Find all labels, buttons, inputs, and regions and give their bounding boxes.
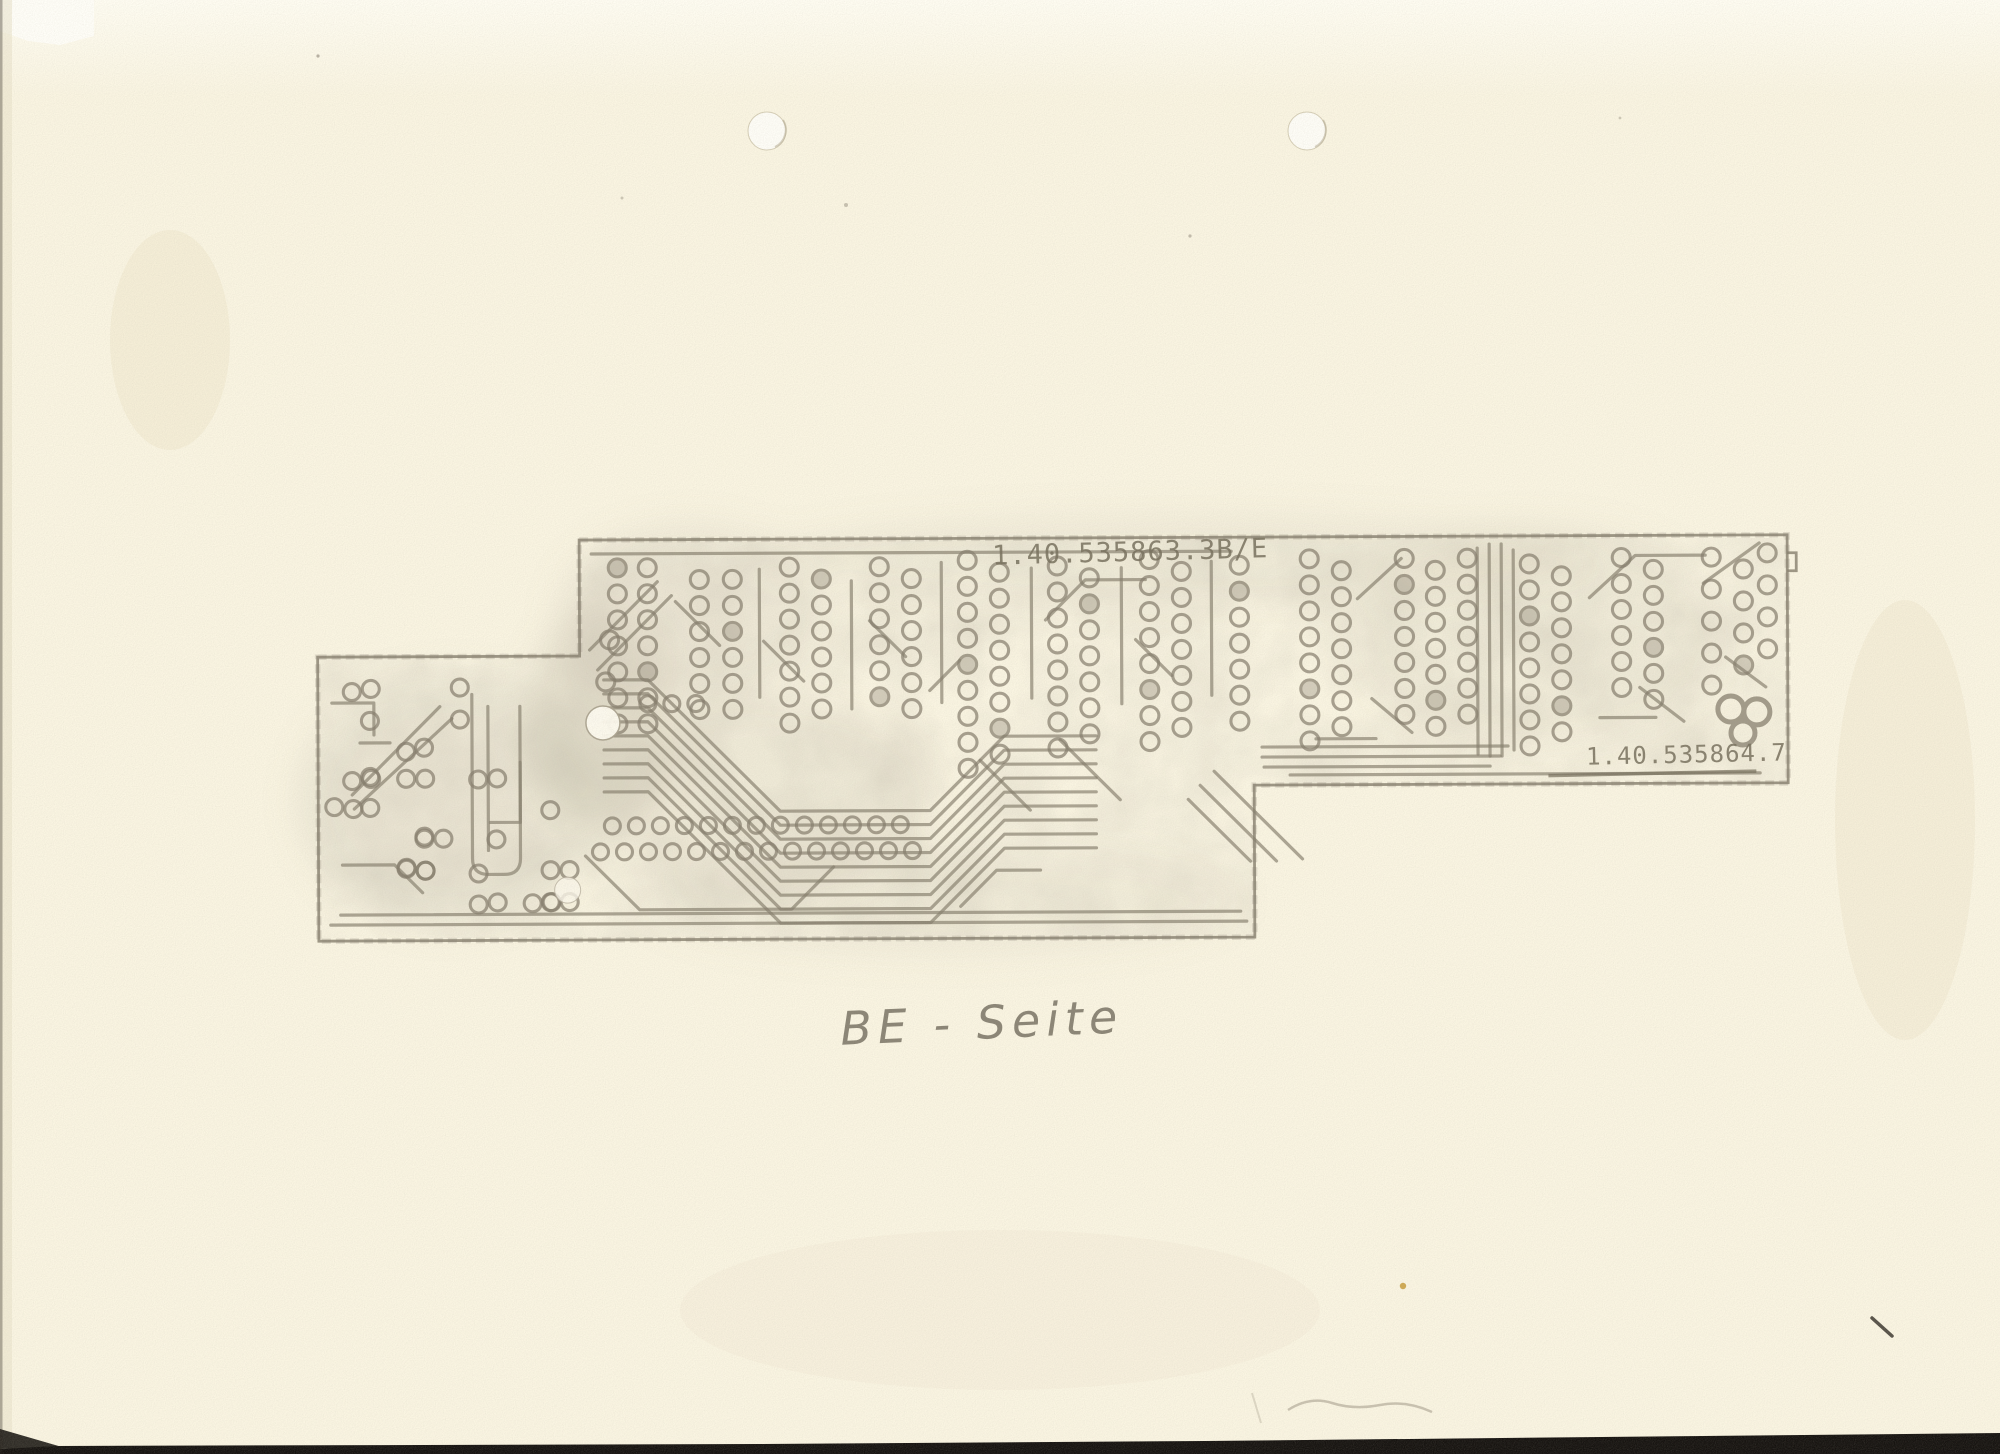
pcb-photocopy-scan: 1.40.535863.3B/E 1.40.535864.7 BE - Seit… [0,0,2000,1454]
paper-grain [0,0,2000,1454]
scanned-page: 1.40.535863.3B/E 1.40.535864.7 BE - Seit… [0,0,2000,1454]
